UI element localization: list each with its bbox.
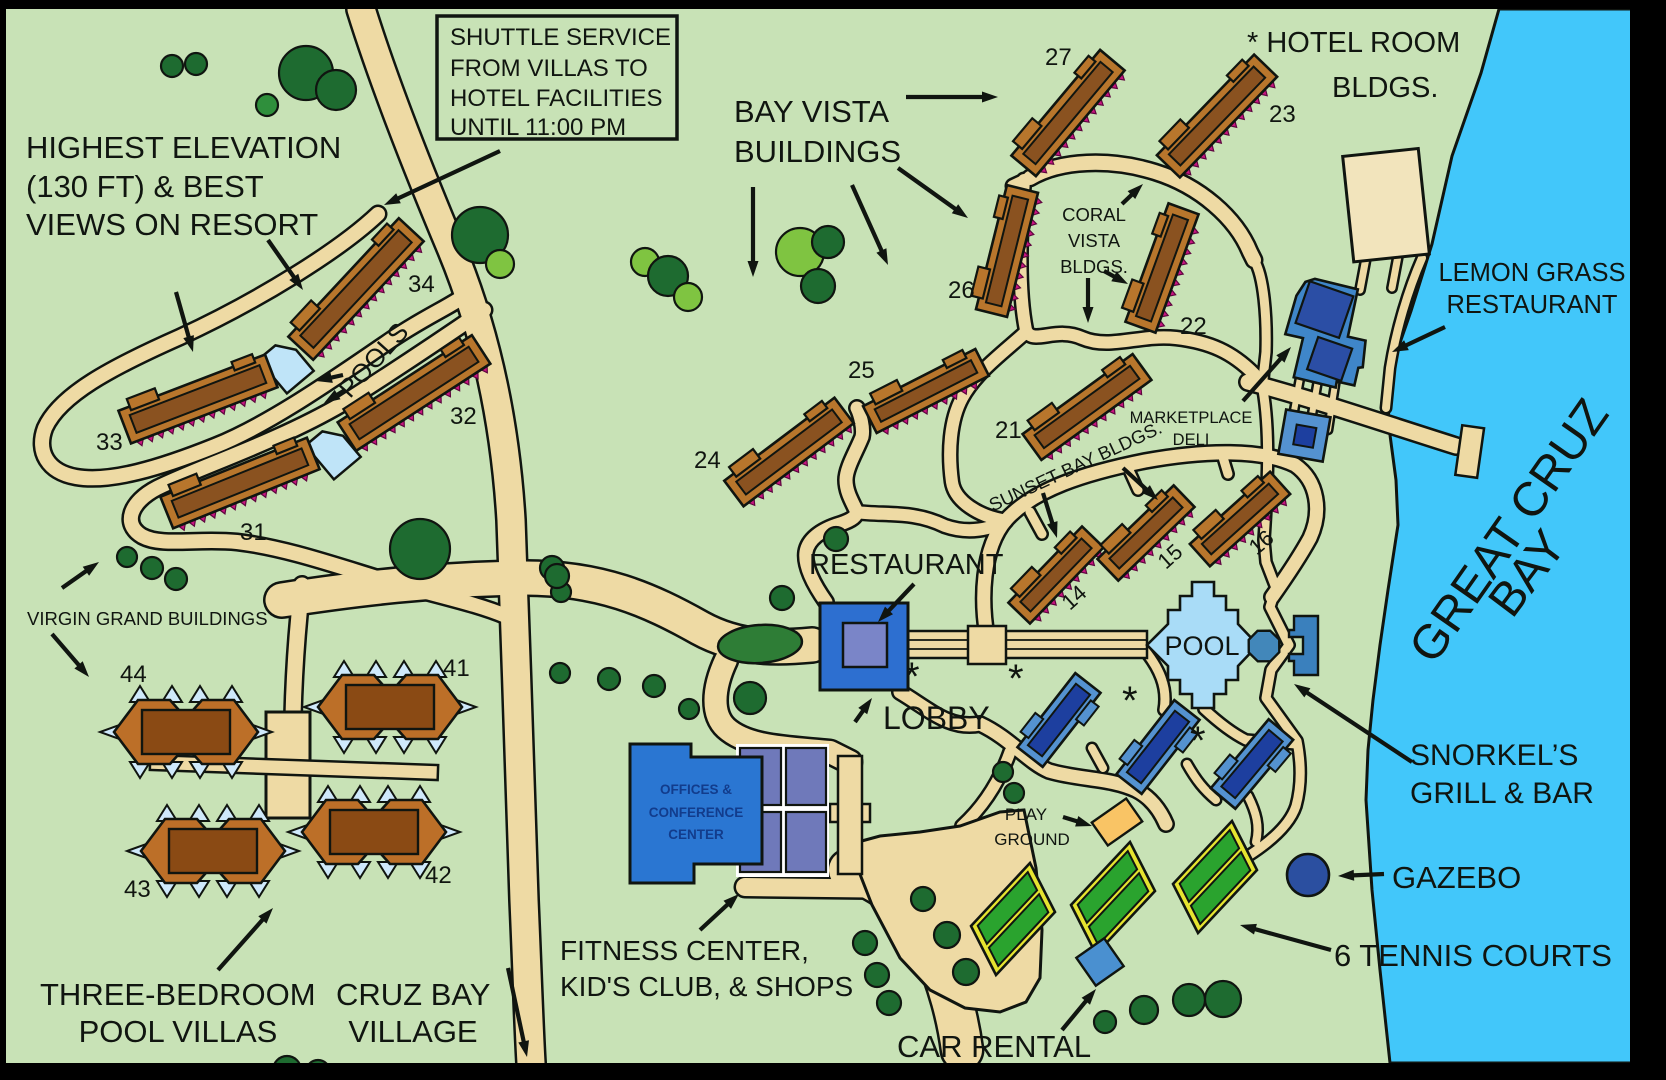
svg-text:21: 21 <box>995 417 1022 444</box>
svg-text:CENTER: CENTER <box>668 827 724 842</box>
svg-text:UNTIL 11:00 PM: UNTIL 11:00 PM <box>450 114 626 141</box>
svg-text:*: * <box>1008 657 1024 701</box>
svg-text:FITNESS CENTER,: FITNESS CENTER, <box>560 935 809 966</box>
svg-text:32: 32 <box>450 403 477 430</box>
svg-text:23: 23 <box>1269 101 1296 128</box>
svg-text:FROM VILLAS TO: FROM VILLAS TO <box>450 55 648 82</box>
svg-text:GAZEBO: GAZEBO <box>1392 860 1521 895</box>
svg-text:22: 22 <box>1180 313 1207 340</box>
svg-text:GROUND: GROUND <box>994 830 1070 849</box>
svg-text:BAY VISTA: BAY VISTA <box>734 94 889 129</box>
svg-text:VIEWS ON RESORT: VIEWS ON RESORT <box>26 207 318 242</box>
svg-text:OFFICES &: OFFICES & <box>660 782 732 797</box>
svg-text:27: 27 <box>1045 44 1072 71</box>
svg-text:MARKETPLACE: MARKETPLACE <box>1130 409 1253 427</box>
svg-text:*: * <box>1190 719 1206 763</box>
svg-text:SHUTTLE SERVICE: SHUTTLE SERVICE <box>450 24 671 51</box>
svg-text:26: 26 <box>948 277 975 304</box>
svg-text:PLAY: PLAY <box>1005 805 1047 824</box>
svg-text:DELI: DELI <box>1173 431 1210 449</box>
svg-text:HOTEL FACILITIES: HOTEL FACILITIES <box>450 85 663 112</box>
svg-text:BLDGS.: BLDGS. <box>1332 72 1438 104</box>
svg-text:LEMON GRASS: LEMON GRASS <box>1438 259 1625 287</box>
svg-text:RESTAURANT: RESTAURANT <box>809 549 1004 581</box>
svg-text:(130 FT) & BEST: (130 FT) & BEST <box>26 169 264 204</box>
svg-text:THREE-BEDROOM: THREE-BEDROOM <box>40 977 316 1012</box>
svg-text:44: 44 <box>120 661 147 688</box>
svg-text:LOBBY: LOBBY <box>883 700 990 736</box>
svg-text:34: 34 <box>408 271 435 298</box>
svg-text:CRUZ BAY: CRUZ BAY <box>336 977 490 1012</box>
svg-text:KID'S CLUB, & SHOPS: KID'S CLUB, & SHOPS <box>560 971 853 1002</box>
svg-text:HIGHEST ELEVATION: HIGHEST ELEVATION <box>26 130 341 165</box>
svg-text:POOL: POOL <box>1164 631 1239 661</box>
svg-text:25: 25 <box>848 357 875 384</box>
svg-text:31: 31 <box>240 519 267 546</box>
svg-text:SNORKEL’S: SNORKEL’S <box>1410 739 1578 772</box>
svg-text:BUILDINGS: BUILDINGS <box>734 134 901 169</box>
svg-text:33: 33 <box>96 429 123 456</box>
svg-text:42: 42 <box>425 862 452 889</box>
svg-text:CORAL: CORAL <box>1062 204 1126 225</box>
svg-text:6 TENNIS COURTS: 6 TENNIS COURTS <box>1334 938 1612 973</box>
svg-text:GRILL & BAR: GRILL & BAR <box>1410 777 1594 810</box>
svg-text:VISTA: VISTA <box>1068 230 1121 251</box>
svg-text:VILLAGE: VILLAGE <box>348 1014 477 1049</box>
svg-text:RESTAURANT: RESTAURANT <box>1447 291 1618 319</box>
svg-text:*: * <box>1122 679 1138 723</box>
svg-text:43: 43 <box>124 876 151 903</box>
svg-text:POOL VILLAS: POOL VILLAS <box>79 1014 278 1049</box>
svg-text:CONFERENCE: CONFERENCE <box>649 805 744 820</box>
svg-text:CAR RENTAL: CAR RENTAL <box>897 1029 1091 1064</box>
svg-text:24: 24 <box>694 447 721 474</box>
svg-text:VIRGIN GRAND BUILDINGS: VIRGIN GRAND BUILDINGS <box>27 608 268 629</box>
svg-text:* HOTEL ROOM: * HOTEL ROOM <box>1247 27 1460 59</box>
svg-text:41: 41 <box>443 655 470 682</box>
